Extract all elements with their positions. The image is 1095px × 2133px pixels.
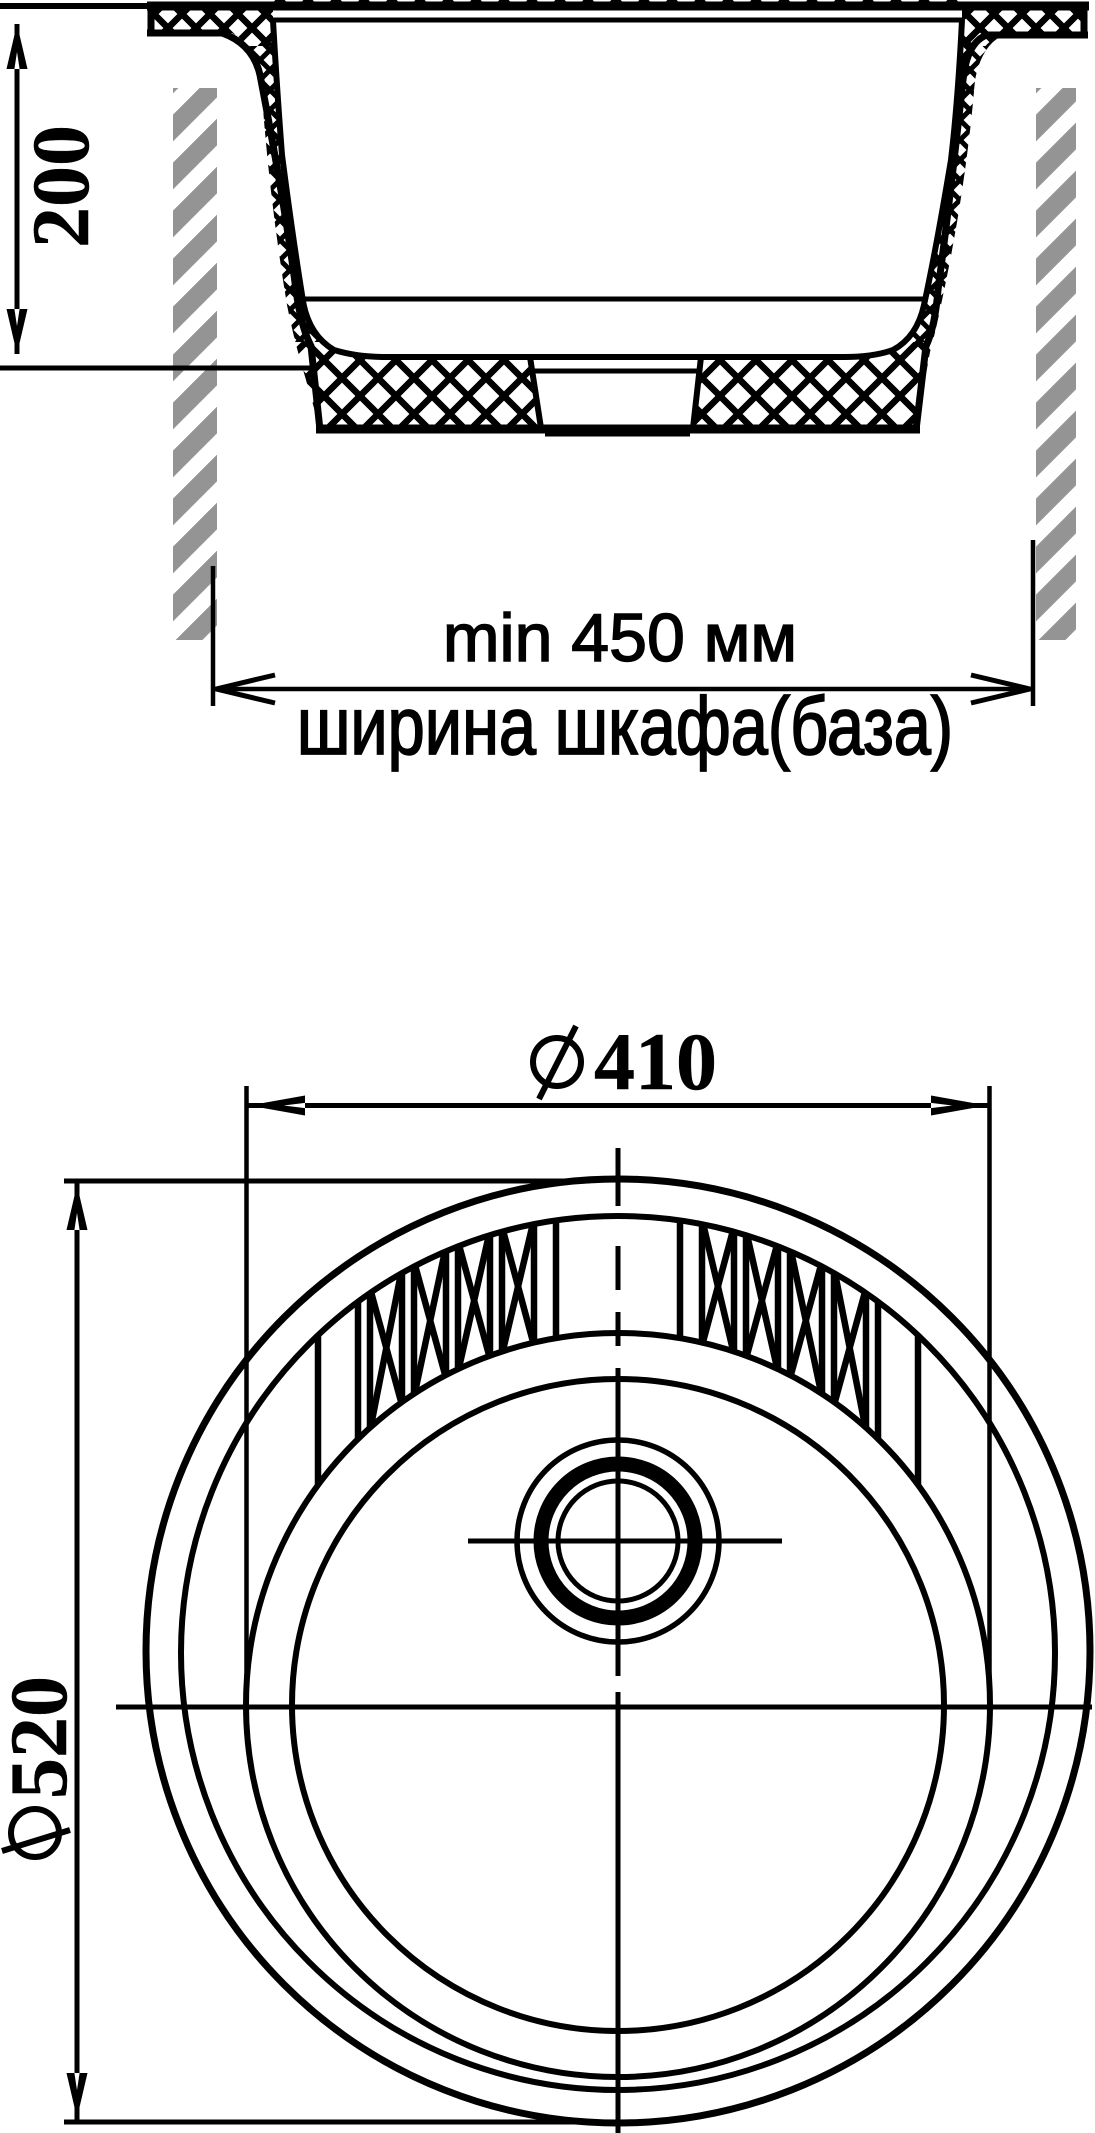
svg-text:200: 200 — [15, 125, 106, 248]
svg-text:min 450 мм: min 450 мм — [443, 600, 797, 676]
svg-text:410: 410 — [594, 1016, 717, 1107]
svg-text:ширина шкафа(база): ширина шкафа(база) — [297, 679, 953, 771]
svg-text:520: 520 — [0, 1676, 84, 1799]
